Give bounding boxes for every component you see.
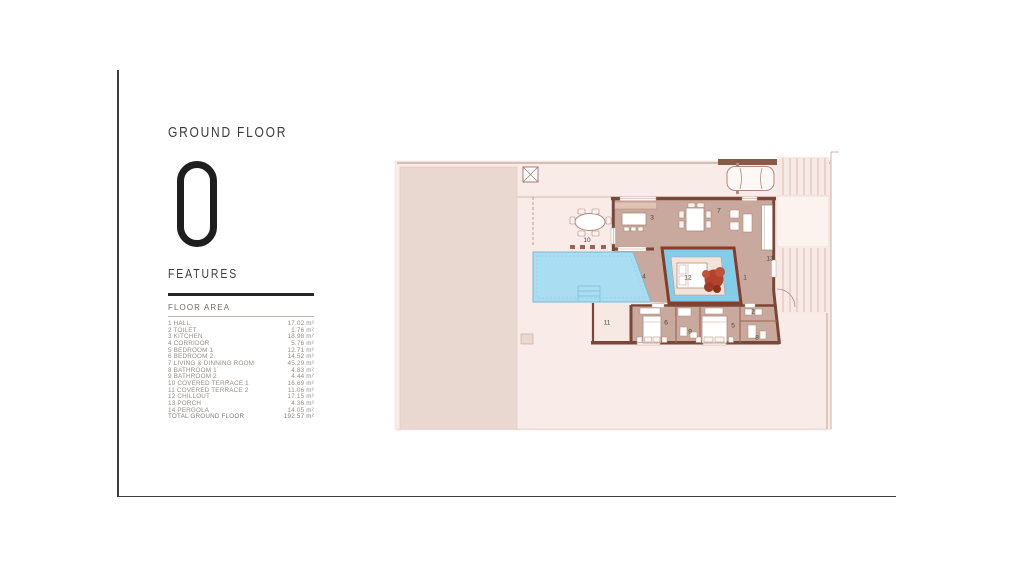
- covered-terrace-2-floor: [593, 303, 630, 343]
- floor-plan: 1 2 3 4 5 6 7 8 9 10 11 12 13: [393, 150, 843, 442]
- divider-thick: [168, 293, 314, 296]
- column-footing: [521, 334, 533, 344]
- floor-area-title: FLOOR AREA: [168, 303, 230, 312]
- room-label-bathroom1: 8: [755, 335, 759, 342]
- room-label-corridor: 4: [642, 274, 646, 281]
- room-label-terrace1: 10: [583, 237, 591, 244]
- pergola-column-icon: [523, 167, 538, 182]
- floor-area-rows: 1 HALL17.02 m²2 TOILET1.76 m²3 KITCHEN18…: [168, 321, 314, 414]
- floor-area-total-row: TOTAL GROUND FLOOR 192.57 m²: [168, 414, 314, 421]
- page-frame-left: [117, 70, 119, 497]
- pool-water: [533, 252, 651, 302]
- room-label-porch: 13: [766, 256, 774, 263]
- chillout-courtyard: [662, 248, 741, 303]
- room-label-bedroom2: 6: [664, 320, 668, 327]
- page-frame-bottom: [117, 496, 896, 498]
- nightstand: [637, 337, 642, 343]
- entry-deck: [777, 196, 829, 313]
- room-label-living: 7: [717, 208, 721, 215]
- carport-roof-edge: [718, 159, 777, 165]
- room-label-bathroom2: 9: [688, 329, 692, 336]
- sofa: [762, 205, 773, 250]
- garden-area: [400, 167, 517, 429]
- armchair: [730, 210, 739, 218]
- swimming-pool: [533, 252, 651, 302]
- deck-a: [777, 157, 829, 196]
- room-label-bedroom1: 5: [731, 323, 735, 330]
- armchair: [730, 222, 739, 230]
- nightstand: [662, 337, 667, 343]
- features-heading: FEATURES: [168, 266, 238, 281]
- room-label-kitchen: 3: [650, 215, 654, 222]
- room-label-toilet: 2: [751, 309, 755, 316]
- porch-area: [777, 196, 829, 247]
- kitchen-counter: [615, 202, 657, 209]
- page-title: GROUND FLOOR: [168, 124, 287, 141]
- total-value: 192.57 m²: [284, 414, 314, 421]
- total-label: TOTAL GROUND FLOOR: [168, 414, 244, 421]
- nightstand: [729, 337, 734, 343]
- kitchen-island: [622, 213, 646, 225]
- kitchen-stools: [624, 227, 643, 231]
- deck-b: [777, 247, 829, 313]
- coffee-table: [743, 214, 752, 232]
- floor-number-zero: 0: [177, 161, 217, 247]
- room-label-terrace2: 11: [604, 320, 611, 327]
- dining-table: [686, 208, 704, 231]
- floor-area-table: 1 HALL17.02 m²2 TOILET1.76 m²3 KITCHEN18…: [168, 321, 314, 421]
- wardrobe: [640, 308, 660, 314]
- room-label-hall: 1: [743, 275, 747, 282]
- room-label-chillout: 12: [684, 275, 692, 282]
- divider-thin: [168, 316, 314, 317]
- floor-number-text: 0: [184, 168, 185, 169]
- car-icon: [727, 163, 774, 194]
- wardrobe: [705, 308, 723, 314]
